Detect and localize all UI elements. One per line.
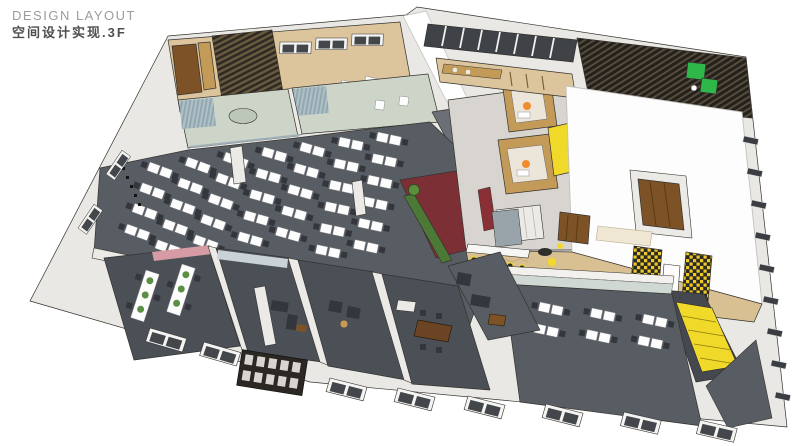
armchair — [346, 306, 361, 319]
curtain-1 — [179, 98, 216, 129]
lounge-pouf — [538, 248, 552, 256]
armchair — [328, 300, 343, 313]
person-figure — [523, 102, 531, 110]
south-east-office — [500, 266, 702, 426]
chair — [420, 310, 426, 316]
oval-table — [229, 109, 257, 124]
sideboard — [396, 300, 416, 312]
small-table — [399, 96, 409, 106]
desk — [518, 112, 530, 118]
round-table — [340, 320, 348, 328]
chair — [436, 313, 442, 319]
small-table — [375, 100, 385, 110]
desk — [517, 170, 529, 176]
design-layout-page: DESIGN LAYOUT 空间设计实现.3F — [0, 0, 800, 446]
page-subtitle: 空间设计实现.3F — [12, 25, 136, 41]
side-table — [691, 85, 697, 91]
chair — [420, 344, 426, 350]
curtain-2 — [293, 86, 329, 116]
green-sofa — [686, 62, 706, 80]
title-block: DESIGN LAYOUT 空间设计实现.3F — [12, 8, 136, 42]
chair — [436, 347, 442, 353]
sink — [452, 67, 457, 72]
palm-plant — [409, 185, 420, 196]
person-figure — [522, 160, 530, 168]
wood-door-panel — [558, 212, 590, 244]
elevator-wood-doors — [638, 179, 684, 230]
green-sofa — [700, 78, 718, 94]
feature-wall — [492, 209, 522, 247]
louvered-room — [212, 30, 283, 99]
sideboard — [488, 314, 506, 326]
floor-plan-rendering — [0, 0, 800, 446]
armchair — [456, 272, 472, 286]
sink — [465, 69, 470, 74]
page-title: DESIGN LAYOUT — [12, 8, 136, 24]
